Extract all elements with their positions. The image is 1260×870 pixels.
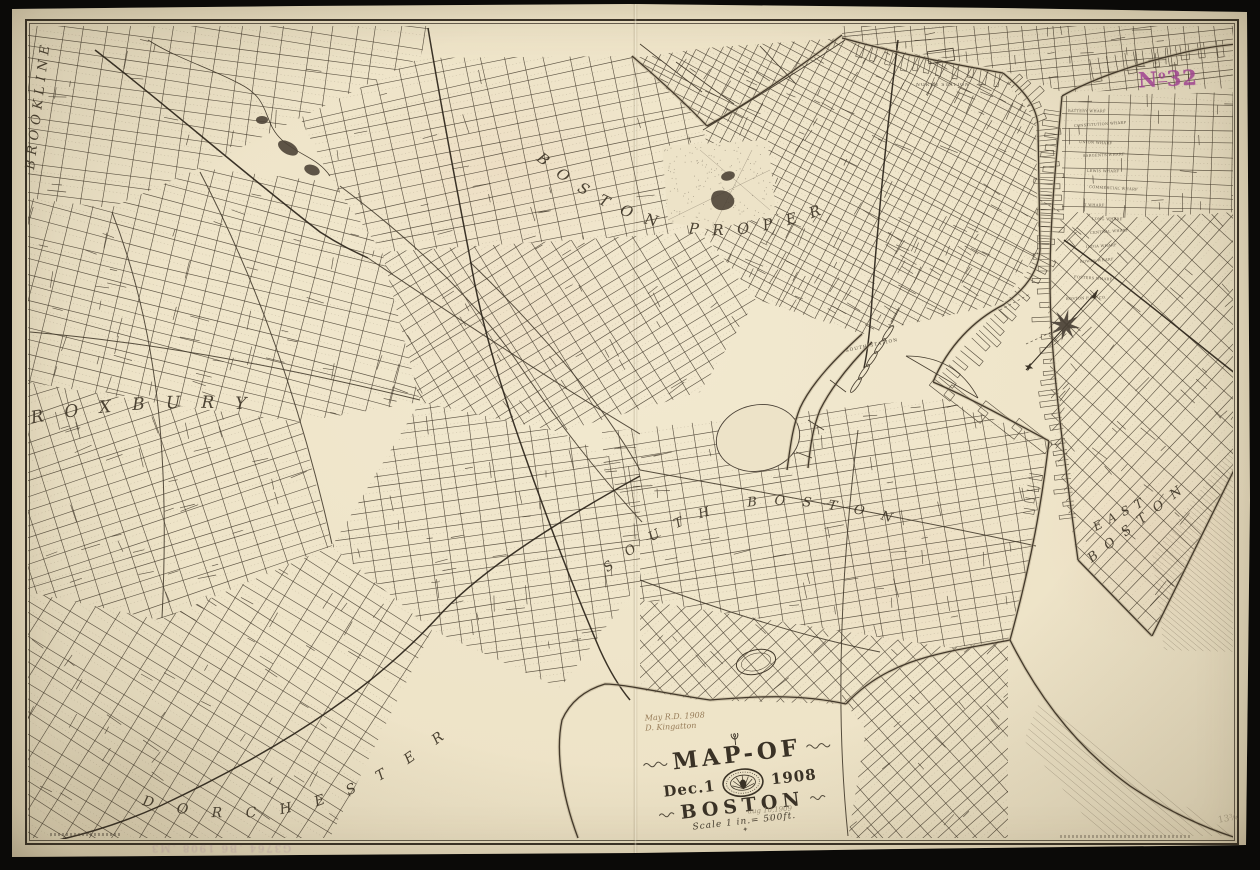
- wharf-label: CONSTITUTION WHARF: [1074, 121, 1127, 128]
- date-year: 1908: [770, 765, 817, 788]
- station-label: NORTH STATION: [916, 83, 970, 88]
- wharf-label: BATTERY WHARF: [1068, 109, 1106, 113]
- stamp-number: 32: [1166, 64, 1199, 91]
- wharf-label: T WHARF: [1084, 203, 1105, 208]
- wharf-label: LONG WHARF: [1092, 217, 1123, 221]
- major-avenues: [30, 172, 1036, 836]
- bridges-ferries-stations: [640, 40, 1060, 458]
- stamp-letter: N: [1137, 67, 1158, 93]
- compass-north-arrow: [1025, 290, 1098, 371]
- wharf-label: FOSTERS WHARF: [1074, 275, 1113, 282]
- date-day: Dec.1: [662, 777, 716, 801]
- wharf-label: CENTRAL WHARF: [1090, 228, 1129, 235]
- imprint-smudge-left: [50, 833, 120, 836]
- map-drawing: BROOKLINEROXBURYBOSTON PROPERSOUTH BOSTO…: [0, 0, 1260, 870]
- wharf-label: INDIA WHARF: [1086, 243, 1117, 249]
- photographed-map-scene: BROOKLINEROXBURYBOSTON PROPERSOUTH BOSTO…: [0, 0, 1260, 870]
- right-flourish: [806, 741, 831, 752]
- street-grid-network: [0, 0, 1260, 870]
- left-flourish: [658, 810, 675, 819]
- collection-number-stamp: No32: [1137, 64, 1198, 92]
- handwritten-ink-note: May R.D. 1908 D. Kingatton: [645, 710, 706, 733]
- map-label-south-boston: SOUTH BOSTON: [601, 494, 911, 576]
- wharf-label: LEWIS WHARF: [1087, 169, 1119, 173]
- wharf-label: UNION WHARF: [1079, 140, 1113, 146]
- wharf-label: COMMERCIAL WHARF: [1089, 185, 1138, 192]
- call-number-ghost-offset: G3764 .B6 1908 .M3: [150, 842, 291, 853]
- left-flourish: [643, 759, 668, 770]
- wharf-label: ROWES WHARF: [1080, 257, 1114, 264]
- map-label-brookline: BROOKLINE: [23, 40, 54, 172]
- map-paper-sheet: BROOKLINEROXBURYBOSTON PROPERSOUTH BOSTO…: [0, 0, 1260, 870]
- right-flourish: [810, 793, 827, 802]
- map-label-dorchester: DORCHESTER: [140, 715, 466, 822]
- pencil-date-note: aug 10,1909 3: [747, 804, 792, 823]
- tidal-flats-hatching: [953, 385, 1260, 870]
- imprint-smudge-right: [1060, 835, 1190, 838]
- wharf-label: SARGENTS WHARF: [1083, 152, 1125, 158]
